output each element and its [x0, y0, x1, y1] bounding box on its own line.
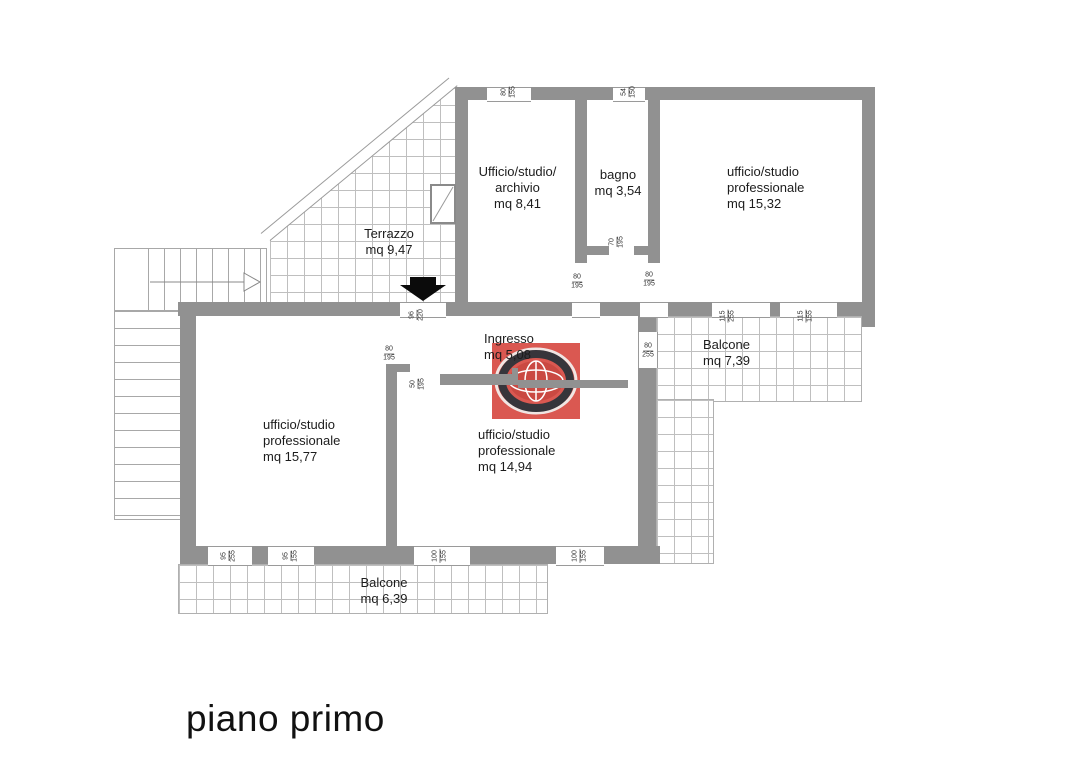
- room-terrazzo-area: mq 9,47: [352, 242, 426, 258]
- room-label-ingresso: Ingresso mq 5,08: [484, 331, 534, 363]
- floor-title: piano primo: [186, 698, 385, 740]
- terrace-window-icon: [430, 184, 456, 224]
- room-studio1494-line1: ufficio/studio: [478, 427, 555, 443]
- wall-top-block-east: [862, 87, 875, 327]
- room-balcone739-line1: Balcone: [703, 337, 750, 353]
- dim-window-south-1: 95255: [221, 550, 238, 562]
- staircase-direction-arrow: [150, 270, 262, 294]
- wall-archivio-bagno-cap: [587, 246, 609, 255]
- room-studio1532-line2: professionale: [727, 180, 804, 196]
- dim-window-south-2: 95155: [283, 550, 300, 562]
- dim-window-balcony-right-1: 115255: [720, 309, 737, 322]
- dim-entrance-door: 96220: [409, 309, 426, 321]
- floor-plan: Ufficio/studio/ archivio mq 8,41 bagno m…: [0, 0, 1086, 768]
- room-studio1577-line1: ufficio/studio: [263, 417, 340, 433]
- door-studio1532-south: [640, 302, 668, 318]
- terrazzo-tiles: [270, 88, 455, 302]
- room-label-balcone-6-39: Balcone mq 6,39: [349, 575, 419, 607]
- room-ingresso-line1: Ingresso: [484, 331, 534, 347]
- wall-room-divider-stub: [386, 364, 410, 372]
- dim-door-balcony-right: 80255: [642, 343, 654, 360]
- room-studio1532-area: mq 15,32: [727, 196, 804, 212]
- room-label-bagno: bagno mq 3,54: [583, 167, 653, 199]
- wall-ingresso-south-step: [512, 368, 518, 378]
- room-archivio-line1: Ufficio/studio/: [455, 164, 580, 180]
- room-label-terrazzo: Terrazzo mq 9,47: [352, 226, 426, 258]
- room-studio1494-line2: professionale: [478, 443, 555, 459]
- room-studio1494-area: mq 14,94: [478, 459, 555, 475]
- room-archivio-line2: archivio: [455, 180, 580, 196]
- dim-window-south-3: 100155: [432, 549, 449, 563]
- room-label-balcone-7-39: Balcone mq 7,39: [703, 337, 750, 369]
- dim-door-studio1577: 80195: [383, 346, 395, 363]
- room-label-studio-14-94: ufficio/studio professionale mq 14,94: [478, 427, 555, 475]
- door-archivio-south: [572, 302, 600, 318]
- room-bagno-line1: bagno: [583, 167, 653, 183]
- dim-window-archivio-north: 80155: [501, 86, 518, 98]
- room-label-studio-15-32: ufficio/studio professionale mq 15,32: [727, 164, 804, 212]
- room-balcone639-area: mq 6,39: [349, 591, 419, 607]
- balcony-right-tiles-strip: [656, 399, 714, 564]
- wall-room-divider: [386, 368, 397, 548]
- entrance-arrow-icon: [400, 276, 446, 302]
- dim-door-studio1494: 50195: [410, 378, 427, 390]
- dim-window-balcony-right-2: 115155: [798, 309, 815, 322]
- dim-window-bagno-north: 54150: [621, 86, 638, 98]
- room-studio1577-area: mq 15,77: [263, 449, 340, 465]
- wall-ingresso-south-a: [440, 374, 518, 385]
- room-balcone639-line1: Balcone: [349, 575, 419, 591]
- room-balcone739-area: mq 7,39: [703, 353, 750, 369]
- wall-bagno-studio-cap: [634, 246, 648, 255]
- dim-window-south-4: 100155: [572, 549, 589, 563]
- room-bagno-area: mq 3,54: [583, 183, 653, 199]
- room-studio1532-line1: ufficio/studio: [727, 164, 804, 180]
- room-label-studio-15-77: ufficio/studio professionale mq 15,77: [263, 417, 340, 465]
- room-label-archivio: Ufficio/studio/ archivio mq 8,41: [455, 164, 580, 212]
- room-studio1577-line2: professionale: [263, 433, 340, 449]
- dim-door-archivio-south: 80195: [571, 274, 583, 291]
- room-terrazzo-line1: Terrazzo: [352, 226, 426, 242]
- balcony-right-tiles-top: [656, 316, 862, 402]
- dim-door-bagno: 70195: [609, 236, 626, 248]
- staircase-lower-run: [114, 310, 182, 520]
- dim-door-studio1532-south: 80195: [643, 272, 655, 289]
- wall-ingresso-south-b: [518, 380, 628, 388]
- room-ingresso-area: mq 5,08: [484, 347, 534, 363]
- room-archivio-area: mq 8,41: [455, 196, 580, 212]
- wall-lower-block-west: [180, 302, 196, 564]
